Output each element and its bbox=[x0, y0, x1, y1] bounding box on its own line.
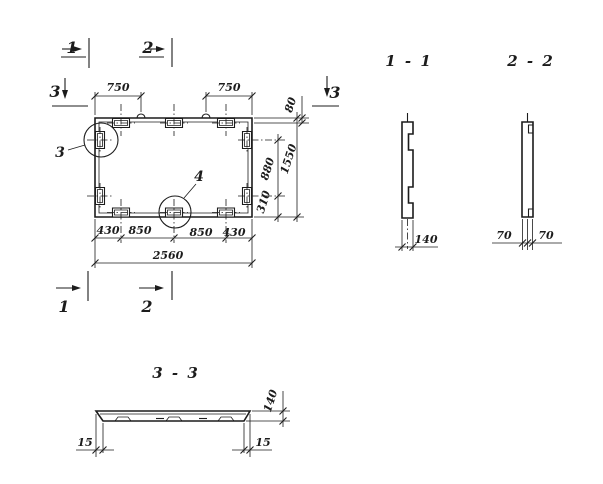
section-3-3-profile bbox=[96, 411, 250, 421]
dim-15-left: 15 bbox=[77, 436, 92, 449]
section-3-3-title: 3 - 3 bbox=[152, 364, 200, 382]
detail-3-label: 3 bbox=[55, 145, 65, 161]
svg-text:1: 1 bbox=[58, 297, 69, 316]
detail-3-leader bbox=[68, 145, 85, 150]
dim-880: 880 bbox=[258, 156, 278, 182]
section-3-3: 3 - 3 15 15 140 bbox=[76, 364, 290, 457]
dim-70-right: 70 bbox=[538, 229, 554, 242]
dim-750-left: 750 bbox=[107, 81, 130, 94]
dim-310: 310 bbox=[254, 189, 274, 215]
dim-750-right: 750 bbox=[218, 81, 241, 94]
dim-850-1: 850 bbox=[129, 224, 152, 237]
section-marker-2-bottom: 2 bbox=[139, 271, 172, 316]
plan-view: 3 4 750 750 80 bbox=[49, 38, 340, 316]
panel-outline bbox=[95, 118, 252, 217]
svg-text:3: 3 bbox=[329, 83, 340, 102]
section-marker-3-right: 3 bbox=[312, 76, 341, 106]
dim-430-1: 430 bbox=[97, 224, 120, 237]
svg-text:2: 2 bbox=[140, 297, 152, 316]
dim-15-right: 15 bbox=[255, 436, 270, 449]
section-2-2-title: 2 - 2 bbox=[506, 52, 555, 70]
dim-850-2: 850 bbox=[190, 226, 213, 239]
dim-430-2: 430 bbox=[223, 226, 246, 239]
dim-1550: 1550 bbox=[278, 142, 300, 175]
section-1-1-profile bbox=[402, 122, 413, 218]
drawing-canvas: 3 4 750 750 80 bbox=[0, 0, 603, 484]
section-1-1-title: 1 - 1 bbox=[385, 52, 433, 70]
section-2-2: 2 - 2 70 70 bbox=[492, 52, 562, 250]
dim-bottom: 430 850 850 430 2560 bbox=[92, 219, 256, 268]
dim-top: 750 750 bbox=[92, 81, 256, 115]
dim-right: 80 880 310 1550 bbox=[254, 95, 309, 222]
section-marker-3-left: 3 bbox=[49, 78, 88, 106]
dim-80: 80 bbox=[282, 95, 299, 114]
dim-140-section-1: 140 bbox=[415, 233, 438, 246]
section-marker-1-bottom: 1 bbox=[56, 271, 88, 316]
section-2-2-profile bbox=[522, 122, 533, 217]
detail-4-label: 4 bbox=[194, 169, 204, 185]
section-marker-1-top: 1 bbox=[61, 38, 89, 68]
embedded-plates-bottom bbox=[107, 199, 240, 243]
detail-4-leader bbox=[184, 184, 196, 198]
embedded-plates-left bbox=[87, 127, 113, 209]
engineering-drawing: 3 4 750 750 80 bbox=[0, 0, 603, 484]
dim-70-left: 70 bbox=[496, 229, 512, 242]
section-marker-2-top: 2 bbox=[139, 38, 172, 67]
dim-2560: 2560 bbox=[152, 249, 184, 262]
svg-text:3: 3 bbox=[49, 82, 60, 101]
svg-text:2: 2 bbox=[141, 38, 153, 57]
section-1-1: 1 - 1 140 bbox=[385, 52, 438, 251]
dim-140-section-3: 140 bbox=[261, 388, 281, 414]
embedded-plates-top bbox=[107, 104, 240, 136]
